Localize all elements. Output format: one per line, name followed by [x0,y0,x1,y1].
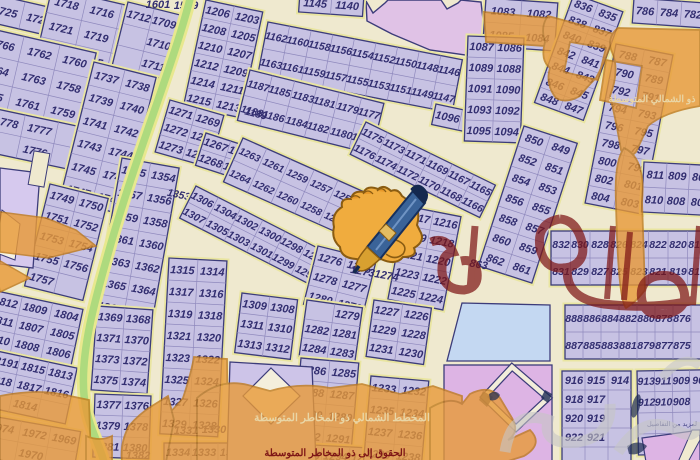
svg-text:1092: 1092 [495,105,520,118]
svg-text:1094: 1094 [494,126,519,139]
svg-text:1093: 1093 [467,104,492,117]
svg-text:المخطط الشمالي ذو المخاطر المت: المخطط الشمالي ذو المخاطر المتوسطة [254,412,430,425]
svg-text:1323: 1323 [165,352,190,365]
svg-text:1316: 1316 [199,288,225,301]
svg-text:1321: 1321 [166,330,191,343]
svg-text:1377: 1377 [96,399,122,412]
svg-text:809: 809 [668,170,688,183]
svg-text:879: 879 [637,340,655,352]
svg-text:1317: 1317 [169,286,195,299]
svg-text:1371: 1371 [96,332,121,346]
svg-text:1089: 1089 [468,62,494,75]
svg-text:1369: 1369 [98,311,124,325]
svg-text:822: 822 [649,239,667,251]
svg-text:917: 917 [587,394,606,406]
svg-text:807: 807 [692,172,700,185]
svg-text:1601: 1601 [146,0,170,11]
svg-text:1320: 1320 [196,332,222,345]
svg-text:883: 883 [601,340,619,352]
svg-text:913: 913 [637,376,655,388]
svg-text:908: 908 [673,396,691,408]
svg-text:808: 808 [666,195,686,208]
svg-text:1091: 1091 [468,83,493,96]
svg-text:1145: 1145 [303,0,328,11]
svg-text:1374: 1374 [121,376,146,390]
svg-text:832: 832 [552,239,570,251]
svg-text:1140: 1140 [335,0,360,13]
svg-text:915: 915 [587,375,606,387]
svg-text:881: 881 [619,340,637,352]
svg-text:877: 877 [655,340,674,352]
svg-text:806: 806 [690,197,700,210]
svg-text:1314: 1314 [200,266,225,279]
svg-text:1315: 1315 [170,264,196,277]
svg-text:887: 887 [565,340,584,352]
svg-text:1368: 1368 [125,313,151,327]
svg-text:888: 888 [565,313,583,325]
svg-text:1090: 1090 [496,84,522,97]
svg-text:1370: 1370 [124,334,150,348]
svg-text:1088: 1088 [496,63,522,76]
svg-text:1372: 1372 [123,355,148,369]
svg-text:882: 882 [619,313,637,325]
svg-text:1318: 1318 [197,310,223,323]
svg-text:782: 782 [683,9,700,22]
svg-text:811: 811 [646,169,664,182]
svg-text:885: 885 [583,340,601,352]
svg-text:910: 910 [655,396,673,408]
svg-text:ذو الشمالي المتوسطة: ذو الشمالي المتوسطة [609,94,697,105]
svg-text:828: 828 [591,239,609,251]
svg-text:810: 810 [645,194,665,207]
svg-text:820: 820 [669,239,687,251]
svg-text:920: 920 [565,413,584,425]
svg-text:914: 914 [611,375,629,387]
svg-text:1319: 1319 [168,308,194,321]
svg-text:786: 786 [635,5,655,18]
svg-text:1095: 1095 [466,125,492,138]
svg-text:1373: 1373 [95,353,120,367]
svg-text:875: 875 [673,340,691,352]
svg-text:886: 886 [583,313,601,325]
svg-text:916: 916 [565,375,584,387]
svg-text:90: 90 [692,375,700,387]
svg-text:784: 784 [659,7,678,20]
svg-text:1375: 1375 [93,374,119,388]
svg-text:الحقوق إلى ذو المخاطر المتوسطة: الحقوق إلى ذو المخاطر المتوسطة [264,448,405,459]
svg-text:918: 918 [565,394,584,406]
svg-text:909: 909 [672,375,690,387]
svg-text:884: 884 [601,313,619,325]
svg-text:1285: 1285 [331,367,357,381]
